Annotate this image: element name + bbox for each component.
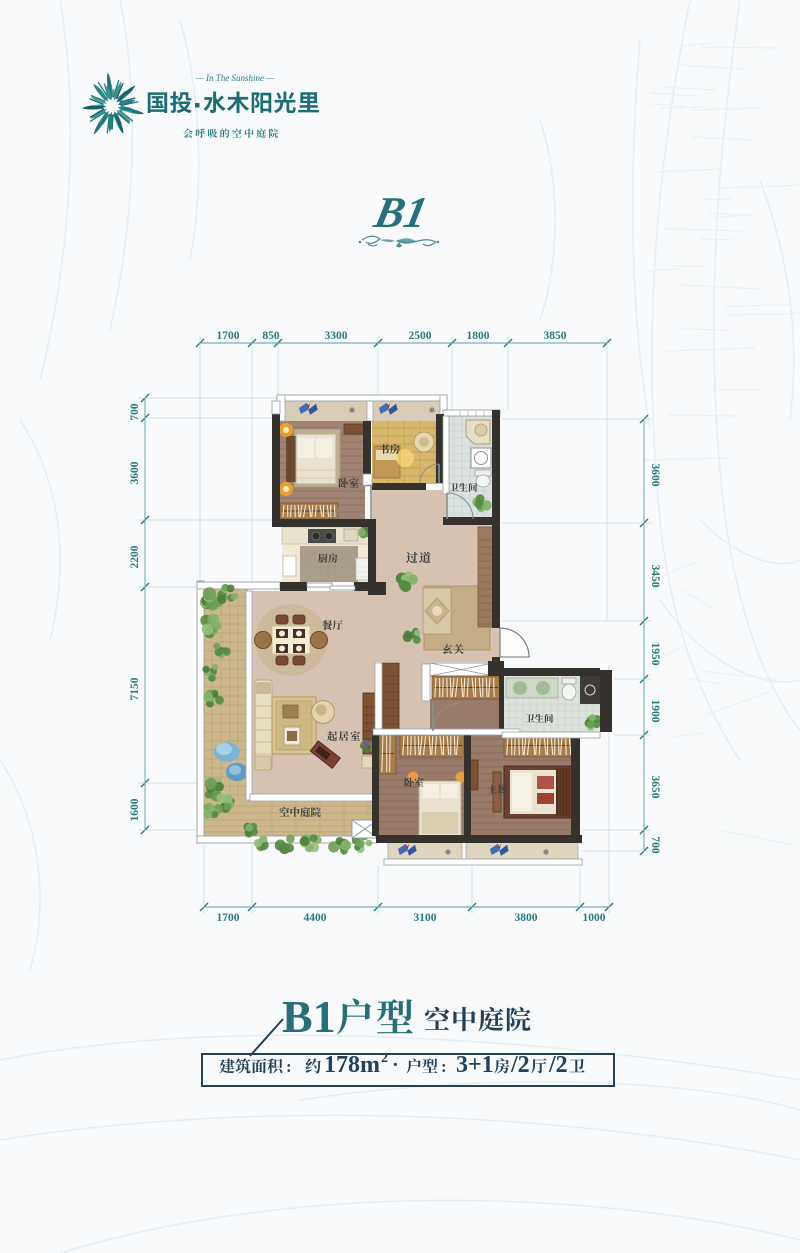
svg-text:178m: 178m — [324, 1052, 380, 1078]
svg-text:3600: 3600 — [649, 464, 661, 487]
svg-text:1700: 1700 — [217, 912, 240, 924]
svg-text:700: 700 — [129, 403, 141, 421]
svg-text:3+1: 3+1 — [456, 1052, 494, 1078]
svg-text:1900: 1900 — [649, 700, 661, 723]
svg-text:850: 850 — [262, 330, 280, 342]
svg-text:B1: B1 — [282, 991, 336, 1042]
svg-text:/2: /2 — [548, 1052, 568, 1078]
svg-text:3300: 3300 — [325, 330, 348, 342]
svg-text:3800: 3800 — [515, 912, 538, 924]
svg-text:3100: 3100 — [414, 912, 437, 924]
svg-text:B1: B1 — [369, 187, 432, 236]
svg-text:1950: 1950 — [649, 643, 661, 666]
svg-text:·: · — [392, 1054, 399, 1076]
svg-text::: : — [286, 1057, 292, 1076]
svg-text:3650: 3650 — [649, 776, 661, 799]
svg-text:2500: 2500 — [409, 330, 432, 342]
svg-text:3600: 3600 — [129, 461, 141, 484]
svg-text:4400: 4400 — [304, 912, 327, 924]
svg-text:1600: 1600 — [129, 798, 141, 821]
svg-text:3450: 3450 — [649, 565, 661, 588]
svg-text:3850: 3850 — [544, 330, 567, 342]
svg-text:/2: /2 — [510, 1052, 530, 1078]
svg-text:1800: 1800 — [467, 330, 490, 342]
svg-text:2: 2 — [381, 1051, 388, 1066]
svg-text:7150: 7150 — [129, 677, 141, 700]
svg-text:2200: 2200 — [129, 545, 141, 568]
svg-text:700: 700 — [649, 836, 661, 854]
svg-text:1700: 1700 — [217, 330, 240, 342]
svg-text:1000: 1000 — [583, 912, 606, 924]
svg-text::: : — [441, 1057, 447, 1076]
svg-text:— In The Sunshine —: — In The Sunshine — — [195, 73, 275, 83]
